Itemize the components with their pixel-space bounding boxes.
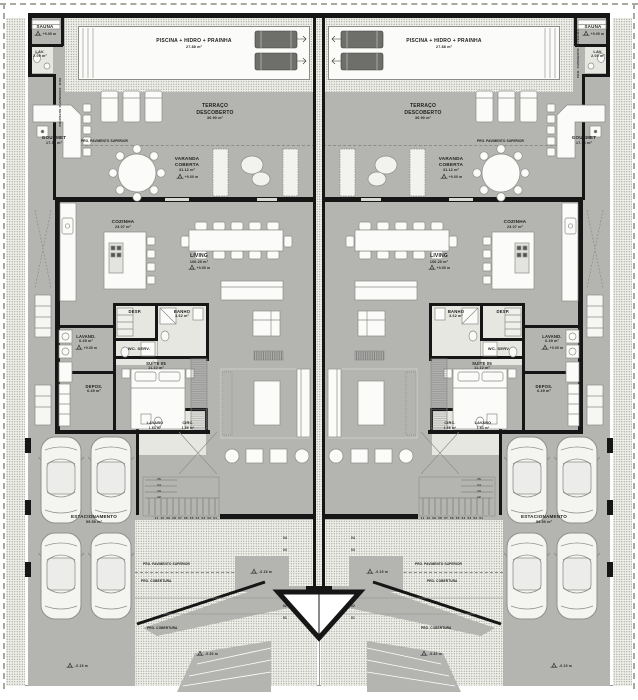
round-table	[473, 145, 529, 201]
room-area: 1.63 m²	[465, 426, 501, 430]
room-label-terraco: TERRAÇO DESCOBERTO 36.90 m²	[391, 103, 455, 121]
stair-number: 12	[474, 496, 484, 500]
level-marker: -0.15 m	[66, 662, 88, 668]
level-marker-block: -0.15 m	[355, 568, 399, 576]
room-area: 6.49 m²	[75, 389, 113, 394]
parked-cars	[38, 437, 134, 619]
property-line-left	[3, 3, 5, 689]
level-marker-icon	[34, 30, 42, 36]
room-label-suite05: SUÍTE 05 11.22 m²	[459, 361, 505, 371]
level-marker: -0.30 m	[196, 650, 218, 656]
level-marker: +0.00 m	[582, 30, 605, 36]
room-label-varanda: VARANDA COBERTA 31.12 m² +0.00 m	[425, 156, 477, 181]
projection-label-roof: PRO. COBERTURA	[427, 579, 497, 583]
room-label-lav: LAV. 2.00 m²	[25, 49, 55, 59]
room-area: 59.50 m²	[501, 520, 587, 525]
sun-loungers	[101, 91, 162, 122]
party-wall-cap-top	[313, 13, 325, 18]
room-label-lavand: LAVAND. 6.49 m² +0.00 m	[529, 334, 575, 352]
ramp-step-number: 04	[279, 536, 291, 540]
projection-label-roof-lower: PRO. COBERTURA	[421, 626, 491, 630]
level-marker-icon	[541, 344, 549, 350]
projection-label-upper-vertical: PRO. PAVIMENTO SUPERIOR	[57, 78, 61, 127]
stair-number: 13	[154, 490, 164, 494]
room-label-banho: BANHO 3.62 m²	[161, 309, 203, 319]
pool-loungers	[255, 31, 306, 70]
room-area: 27.88 m²	[364, 45, 524, 50]
room-label-desp: DESP.	[485, 309, 521, 314]
room-area: 11.22 m²	[133, 366, 179, 371]
gourmet-counter	[547, 104, 605, 158]
level-marker: +0.00 m	[75, 344, 98, 350]
gourmet-counter	[33, 104, 91, 158]
room-label-terraco: TERRAÇO DESCOBERTO 36.90 m²	[183, 103, 247, 121]
projection-label-upper-bottom: PRO. PAVIMENTO SUPERIOR	[415, 562, 495, 566]
level-marker-icon	[250, 568, 258, 574]
level-marker-icon	[75, 344, 83, 350]
level-marker-block: -0.15 m	[239, 568, 283, 576]
level-value: -0.15 m	[259, 570, 272, 574]
level-marker: -0.30 m	[420, 650, 442, 656]
setback-band-right	[613, 18, 632, 686]
level-marker-icon	[428, 264, 436, 270]
room-label-lav: LAV. 2.00 m²	[583, 49, 613, 59]
level-marker: +0.00 m	[188, 264, 211, 270]
room-area: 23.07 m²	[491, 225, 539, 230]
projection-label-upper-vertical: PRO. PAVIMENTO SUPERIOR	[577, 29, 581, 78]
level-value: -0.15 m	[559, 664, 572, 668]
level-value: +0.00 m	[185, 175, 199, 179]
level-marker: -0.15 m	[250, 568, 272, 574]
room-name: DESP.	[485, 309, 521, 314]
stair-number: 14	[474, 484, 484, 488]
room-label-wcserv: WC. SERV.	[477, 346, 521, 351]
level-value: -0.15 m	[75, 664, 88, 668]
level-marker: +0.00 m	[34, 30, 57, 36]
level-marker-driveway: -0.15 m	[539, 662, 583, 670]
room-label-cozinha: COZINHA 23.07 m²	[491, 219, 539, 230]
room-label-lavabo: LAVABO 1.63 m²	[137, 421, 173, 430]
level-marker-driveway: -0.15 m	[55, 662, 99, 670]
round-table	[109, 145, 165, 201]
sun-loungers	[476, 91, 537, 122]
level-marker-icon	[176, 173, 184, 179]
room-area: 2.00 m²	[583, 54, 613, 59]
level-marker: +0.00 m	[541, 344, 564, 350]
stair-number: 14	[154, 484, 164, 488]
room-area: 17.36 m²	[33, 141, 75, 146]
room-area: 2.00 m²	[25, 54, 55, 59]
level-value: +0.00 m	[591, 32, 605, 36]
ramp-step-number: 04	[347, 536, 359, 540]
room-name: WC. SERV.	[117, 346, 161, 351]
stair-number: 13	[474, 490, 484, 494]
floorplan-canvas: SAUNA +0.00 m LAV. 2.00 m² GOURMET 17.36…	[0, 0, 638, 700]
level-marker-ramp: -0.30 m	[409, 650, 453, 658]
room-label-piscina: PISCINA + HIDRO + PRAINHA 27.88 m²	[114, 38, 274, 49]
level-marker: +0.00 m	[176, 173, 199, 179]
level-marker-icon	[366, 568, 374, 574]
room-label-wcserv: WC. SERV.	[117, 346, 161, 351]
stair-number: 12	[154, 496, 164, 500]
level-marker: -0.15 m	[550, 662, 572, 668]
projection-label-roof-lower: PRO. COBERTURA	[147, 626, 217, 630]
level-value: +0.00 m	[437, 266, 451, 270]
kitchen	[483, 203, 578, 301]
level-marker: +0.00 m	[428, 264, 451, 270]
level-marker-icon	[550, 662, 558, 668]
room-label-sauna: SAUNA +0.00 m	[27, 24, 63, 38]
level-value: -0.15 m	[375, 570, 388, 574]
level-marker-icon	[420, 650, 428, 656]
room-area: 17.36 m²	[563, 141, 605, 146]
room-label-gourmet: GOURMET 17.36 m²	[563, 135, 605, 146]
projection-label-upper: PRO. PAVIMENTO SUPERIOR	[81, 139, 161, 143]
room-area: 11.22 m²	[459, 366, 505, 371]
entry-triangle	[272, 586, 366, 646]
room-label-banho: BANHO 3.62 m²	[435, 309, 477, 319]
living-furniture	[328, 281, 417, 463]
room-area: 3.62 m²	[161, 314, 203, 319]
planters	[340, 149, 425, 196]
room-label-circ: CIRC. 1.66 m²	[433, 421, 467, 430]
level-marker-ramp: -0.30 m	[185, 650, 229, 658]
level-value: -0.30 m	[205, 652, 218, 656]
center-axis-line	[319, 640, 320, 686]
property-line-right	[633, 3, 635, 689]
stairs	[143, 432, 219, 516]
room-label-lavand: LAVAND. 6.49 m² +0.00 m	[63, 334, 109, 352]
ramp-step-number: 03	[279, 548, 291, 552]
room-label-estacionamento: ESTACIONAMENTO 59.50 m²	[501, 514, 587, 525]
level-marker-icon	[196, 650, 204, 656]
room-name: WC. SERV.	[477, 346, 521, 351]
room-label-varanda: VARANDA COBERTA 31.12 m² +0.00 m	[161, 156, 213, 181]
level-value: -0.30 m	[429, 652, 442, 656]
side-yard	[587, 210, 603, 425]
room-label-lavabo: LAVABO 1.63 m²	[465, 421, 501, 430]
level-value: +0.00 m	[197, 266, 211, 270]
setback-band-left	[6, 18, 25, 686]
pool-steps	[545, 28, 555, 78]
level-marker-icon	[188, 264, 196, 270]
room-area: 1.63 m²	[137, 426, 173, 430]
stairs	[419, 432, 495, 516]
room-area: 6.49 m²	[525, 389, 563, 394]
room-area: 36.90 m²	[391, 116, 455, 121]
level-value: +0.00 m	[550, 346, 564, 350]
room-area: 1.66 m²	[433, 426, 467, 430]
level-marker-icon	[440, 173, 448, 179]
stair-number: 15	[474, 478, 484, 482]
room-area: 23.07 m²	[99, 225, 147, 230]
pool-steps	[83, 28, 93, 78]
planters	[213, 149, 298, 196]
projection-label-upper-bottom: PRO. PAVIMENTO SUPERIOR	[143, 562, 223, 566]
level-marker-icon	[66, 662, 74, 668]
room-label-depos: DEPOS. 6.49 m²	[75, 384, 113, 394]
room-area: 27.88 m²	[114, 45, 274, 50]
room-label-gourmet: GOURMET 17.36 m²	[33, 135, 75, 146]
level-value: +0.00 m	[449, 175, 463, 179]
party-wall	[313, 13, 325, 592]
ramp-step-number: 03	[347, 548, 359, 552]
room-area: 3.62 m²	[435, 314, 477, 319]
stair-run-numbers: 11 10 09 08 07 06 05 04 03 02 01	[417, 517, 487, 521]
living-furniture	[221, 281, 310, 463]
room-area: 36.90 m²	[183, 116, 247, 121]
stair-number: 15	[154, 478, 164, 482]
room-label-estacionamento: ESTACIONAMENTO 59.50 m²	[51, 514, 137, 525]
room-label-depos: DEPOS. 6.49 m²	[525, 384, 563, 394]
pool-loungers	[332, 31, 383, 70]
projection-label-roof: PRO. COBERTURA	[141, 579, 211, 583]
level-value: +0.00 m	[43, 32, 57, 36]
level-marker: -0.15 m	[366, 568, 388, 574]
level-marker: +0.00 m	[440, 173, 463, 179]
stair-run-numbers: 11 10 09 08 07 06 05 04 03 02 01	[151, 517, 221, 521]
level-value: +0.00 m	[84, 346, 98, 350]
kitchen	[60, 203, 155, 301]
room-label-desp: DESP.	[117, 309, 153, 314]
room-area: 59.50 m²	[51, 520, 137, 525]
room-label-suite05: SUÍTE 05 11.22 m²	[133, 361, 179, 371]
room-label-living: LIVING 100.20 m² +0.00 m	[173, 253, 225, 273]
projection-label-upper: PRO. PAVIMENTO SUPERIOR	[477, 139, 557, 143]
room-label-circ: CIRC. 1.66 m²	[171, 421, 205, 430]
room-label-cozinha: COZINHA 23.07 m²	[99, 219, 147, 230]
level-marker-icon	[582, 30, 590, 36]
room-label-living: LIVING 100.20 m² +0.00 m	[413, 253, 465, 273]
room-label-piscina: PISCINA + HIDRO + PRAINHA 27.88 m²	[364, 38, 524, 49]
room-name: DESP.	[117, 309, 153, 314]
room-area: 1.66 m²	[171, 426, 205, 430]
side-yard	[35, 210, 51, 425]
parked-cars	[504, 437, 600, 619]
